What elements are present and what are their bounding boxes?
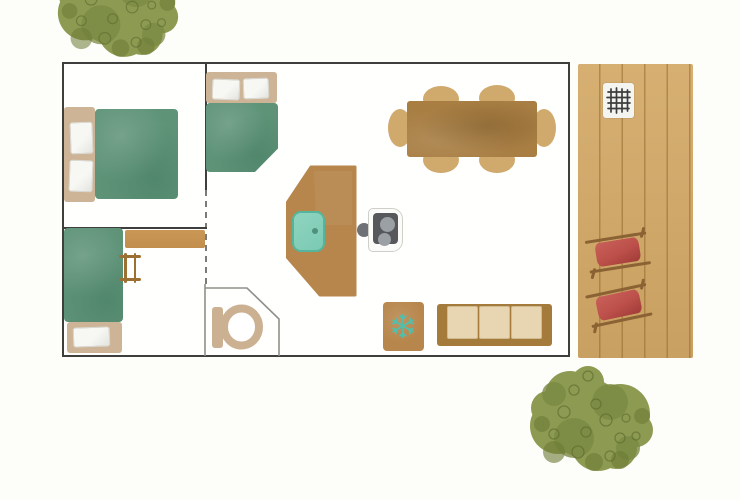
toilet-tank-icon bbox=[212, 307, 223, 348]
deck-lounger-2 bbox=[586, 280, 651, 331]
sink-drain-icon bbox=[312, 228, 318, 234]
bathroom bbox=[203, 280, 285, 358]
bbq-grill-icon bbox=[603, 83, 634, 118]
bunk-bed-pillow bbox=[73, 326, 111, 347]
dining-table bbox=[407, 101, 537, 157]
sofa-cushion bbox=[511, 306, 542, 339]
bed2-pillow bbox=[212, 79, 241, 101]
fridge bbox=[383, 302, 424, 351]
bed1-blanket bbox=[95, 109, 178, 199]
two-burner-cooktop bbox=[368, 208, 403, 252]
toilet-bowl-icon bbox=[224, 309, 259, 346]
sofa-cushions bbox=[447, 306, 542, 339]
kitchen-sink bbox=[292, 211, 325, 252]
bed1-pillow bbox=[69, 122, 93, 155]
snowflake-icon bbox=[389, 312, 417, 340]
grill-grid-icon bbox=[603, 83, 634, 118]
sofa-cushion bbox=[479, 306, 510, 339]
lounger-leg bbox=[593, 322, 598, 333]
deck-lounger-1 bbox=[586, 229, 650, 278]
tree-icon bbox=[52, 0, 184, 64]
floor-plan-canvas bbox=[0, 0, 740, 500]
bunk-ladder-icon bbox=[119, 253, 141, 283]
deck bbox=[578, 64, 693, 358]
bed2-blanket bbox=[206, 103, 278, 172]
sofa-cushion bbox=[447, 306, 478, 339]
burner-icon bbox=[378, 233, 391, 246]
bed1-pillow bbox=[68, 160, 93, 193]
burner-icon bbox=[380, 217, 395, 232]
wall-shelf bbox=[125, 230, 205, 248]
tree-bottom-right bbox=[524, 366, 659, 478]
sofa bbox=[437, 304, 552, 346]
door-opening-dashed bbox=[205, 190, 207, 286]
bed2-pillow bbox=[243, 78, 270, 100]
tree-icon bbox=[524, 366, 659, 478]
tree-top-left bbox=[52, 0, 184, 64]
bunk-bed-blanket bbox=[64, 228, 123, 322]
mobile-home-floor-plan bbox=[62, 62, 570, 357]
